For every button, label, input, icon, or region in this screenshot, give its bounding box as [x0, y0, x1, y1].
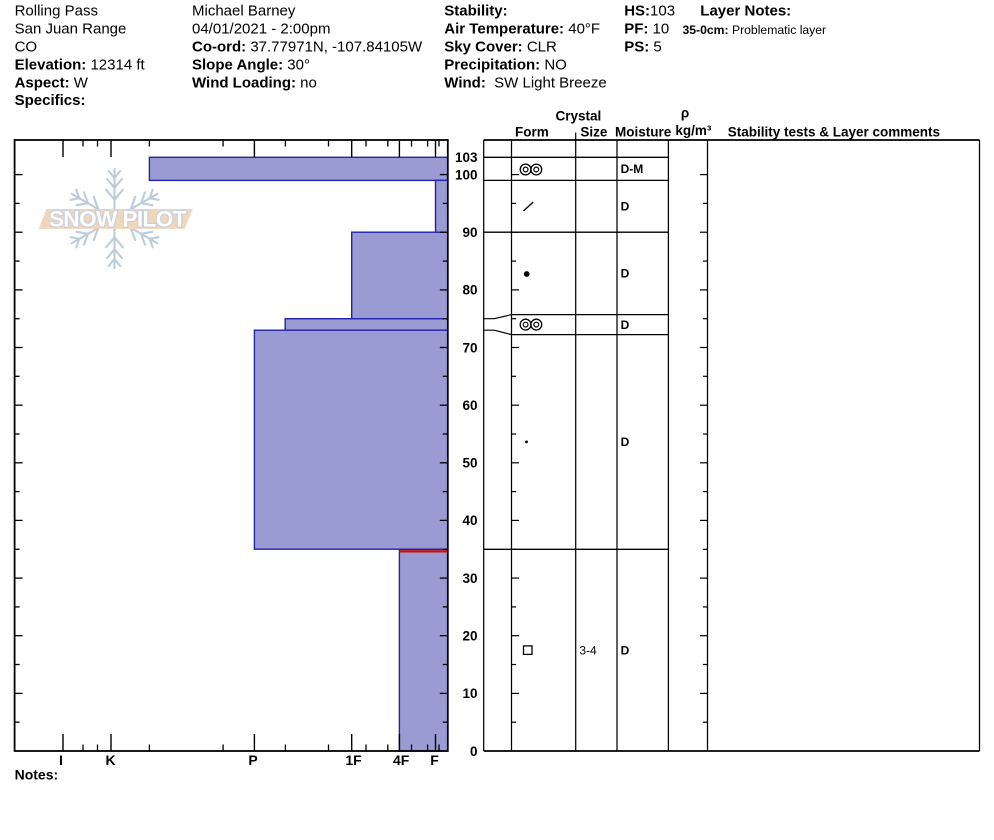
svg-text:Slope Angle: 30°: Slope Angle: 30°: [192, 56, 310, 73]
svg-text:0: 0: [470, 744, 478, 759]
svg-text:Co-ord: 37.77971N, -107.84105W: Co-ord: 37.77971N, -107.84105W: [192, 39, 423, 56]
svg-text:4F: 4F: [393, 752, 410, 768]
svg-text:Sky Cover: CLR: Sky Cover: CLR: [444, 39, 557, 56]
svg-text:1F: 1F: [345, 752, 362, 768]
svg-text:30: 30: [462, 571, 477, 586]
svg-text:D: D: [621, 435, 630, 449]
svg-text:HS:103: HS:103: [624, 3, 675, 20]
svg-text:Michael Barney: Michael Barney: [192, 3, 296, 20]
svg-text:P: P: [248, 752, 257, 768]
svg-text:Specifics:: Specifics:: [15, 92, 86, 109]
svg-text:San Juan Range: San Juan Range: [15, 21, 127, 38]
svg-text:kg/m³: kg/m³: [675, 123, 712, 138]
svg-text:Size: Size: [580, 124, 608, 139]
svg-text:Air Temperature: 40°F: Air Temperature: 40°F: [444, 21, 600, 38]
svg-text:ρ: ρ: [681, 106, 689, 121]
svg-text:50: 50: [462, 456, 477, 471]
svg-text:Wind Loading: no: Wind Loading: no: [192, 74, 317, 91]
svg-text:SNOW PILOT: SNOW PILOT: [49, 207, 188, 232]
svg-text:PS: 5: PS: 5: [624, 39, 662, 56]
svg-text:80: 80: [462, 283, 477, 298]
svg-text:40: 40: [462, 513, 477, 528]
svg-text:CO: CO: [15, 39, 37, 56]
svg-text:Rolling Pass: Rolling Pass: [15, 3, 98, 20]
svg-text:K: K: [105, 752, 115, 768]
svg-text:Form: Form: [515, 124, 549, 139]
svg-text:D: D: [621, 200, 630, 214]
svg-text:F: F: [430, 752, 439, 768]
svg-text:Stability tests & Layer commen: Stability tests & Layer comments: [728, 124, 940, 139]
svg-text:100: 100: [455, 167, 478, 182]
svg-text:D: D: [621, 267, 630, 281]
svg-text:10: 10: [462, 686, 477, 701]
svg-text:Notes:: Notes:: [15, 767, 59, 783]
svg-text:Stability:: Stability:: [444, 3, 507, 20]
svg-text:35-0cm: Problematic layer: 35-0cm: Problematic layer: [683, 23, 827, 37]
svg-text:20: 20: [462, 629, 477, 644]
svg-text:Layer Notes:: Layer Notes:: [700, 3, 791, 20]
svg-text:3-4: 3-4: [579, 644, 597, 658]
svg-text:D-M: D-M: [621, 162, 644, 176]
svg-text:Crystal: Crystal: [556, 108, 602, 123]
svg-text:Precipitation: NO: Precipitation: NO: [444, 56, 567, 73]
svg-text:90: 90: [462, 225, 477, 240]
svg-text:103: 103: [455, 150, 478, 165]
svg-text:I: I: [59, 752, 63, 768]
svg-text:Elevation: 12314 ft: Elevation: 12314 ft: [15, 56, 146, 73]
svg-text:60: 60: [462, 398, 477, 413]
svg-text:Aspect: W: Aspect: W: [15, 74, 89, 91]
svg-text:04/01/2021 - 2:00pm: 04/01/2021 - 2:00pm: [192, 21, 330, 38]
svg-text:D: D: [621, 318, 630, 332]
svg-text:Moisture: Moisture: [615, 124, 672, 139]
svg-text:70: 70: [462, 340, 477, 355]
svg-text:D: D: [621, 644, 630, 658]
svg-text:PF: 10: PF: 10: [624, 21, 669, 38]
svg-text:Wind: SW Light Breeze: Wind: SW Light Breeze: [444, 74, 606, 91]
